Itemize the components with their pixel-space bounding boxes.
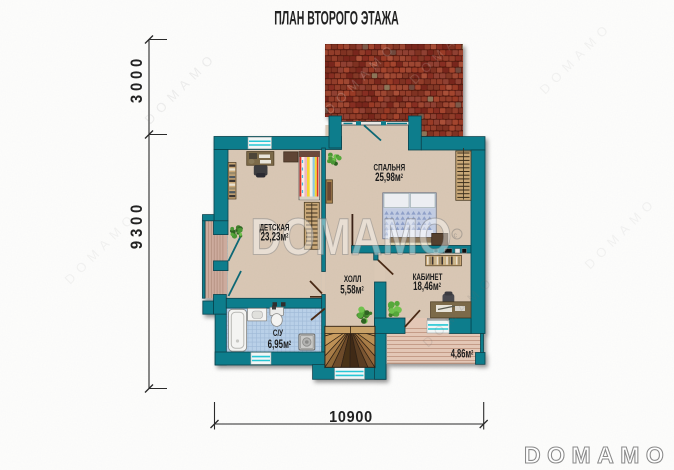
svg-text:10900: 10900 bbox=[329, 408, 373, 426]
svg-text:ХОЛЛ: ХОЛЛ bbox=[344, 274, 362, 285]
svg-text:С/У: С/У bbox=[273, 328, 284, 339]
svg-text:DOMAMO: DOMAMO bbox=[524, 442, 670, 468]
svg-text:4,86м2: 4,86м2 bbox=[451, 348, 474, 361]
svg-text:23,23м2: 23,23м2 bbox=[261, 231, 289, 244]
svg-text:ПЛАН ВТОРОГО ЭТАЖА: ПЛАН ВТОРОГО ЭТАЖА bbox=[274, 8, 399, 29]
svg-text:18,46м2: 18,46м2 bbox=[413, 281, 441, 294]
svg-text:c: c bbox=[454, 233, 458, 240]
svg-text:5,58м2: 5,58м2 bbox=[340, 284, 364, 297]
svg-text:6,95м2: 6,95м2 bbox=[268, 339, 292, 352]
svg-text:3000: 3000 bbox=[128, 55, 146, 103]
svg-text:25,98м2: 25,98м2 bbox=[375, 172, 403, 185]
